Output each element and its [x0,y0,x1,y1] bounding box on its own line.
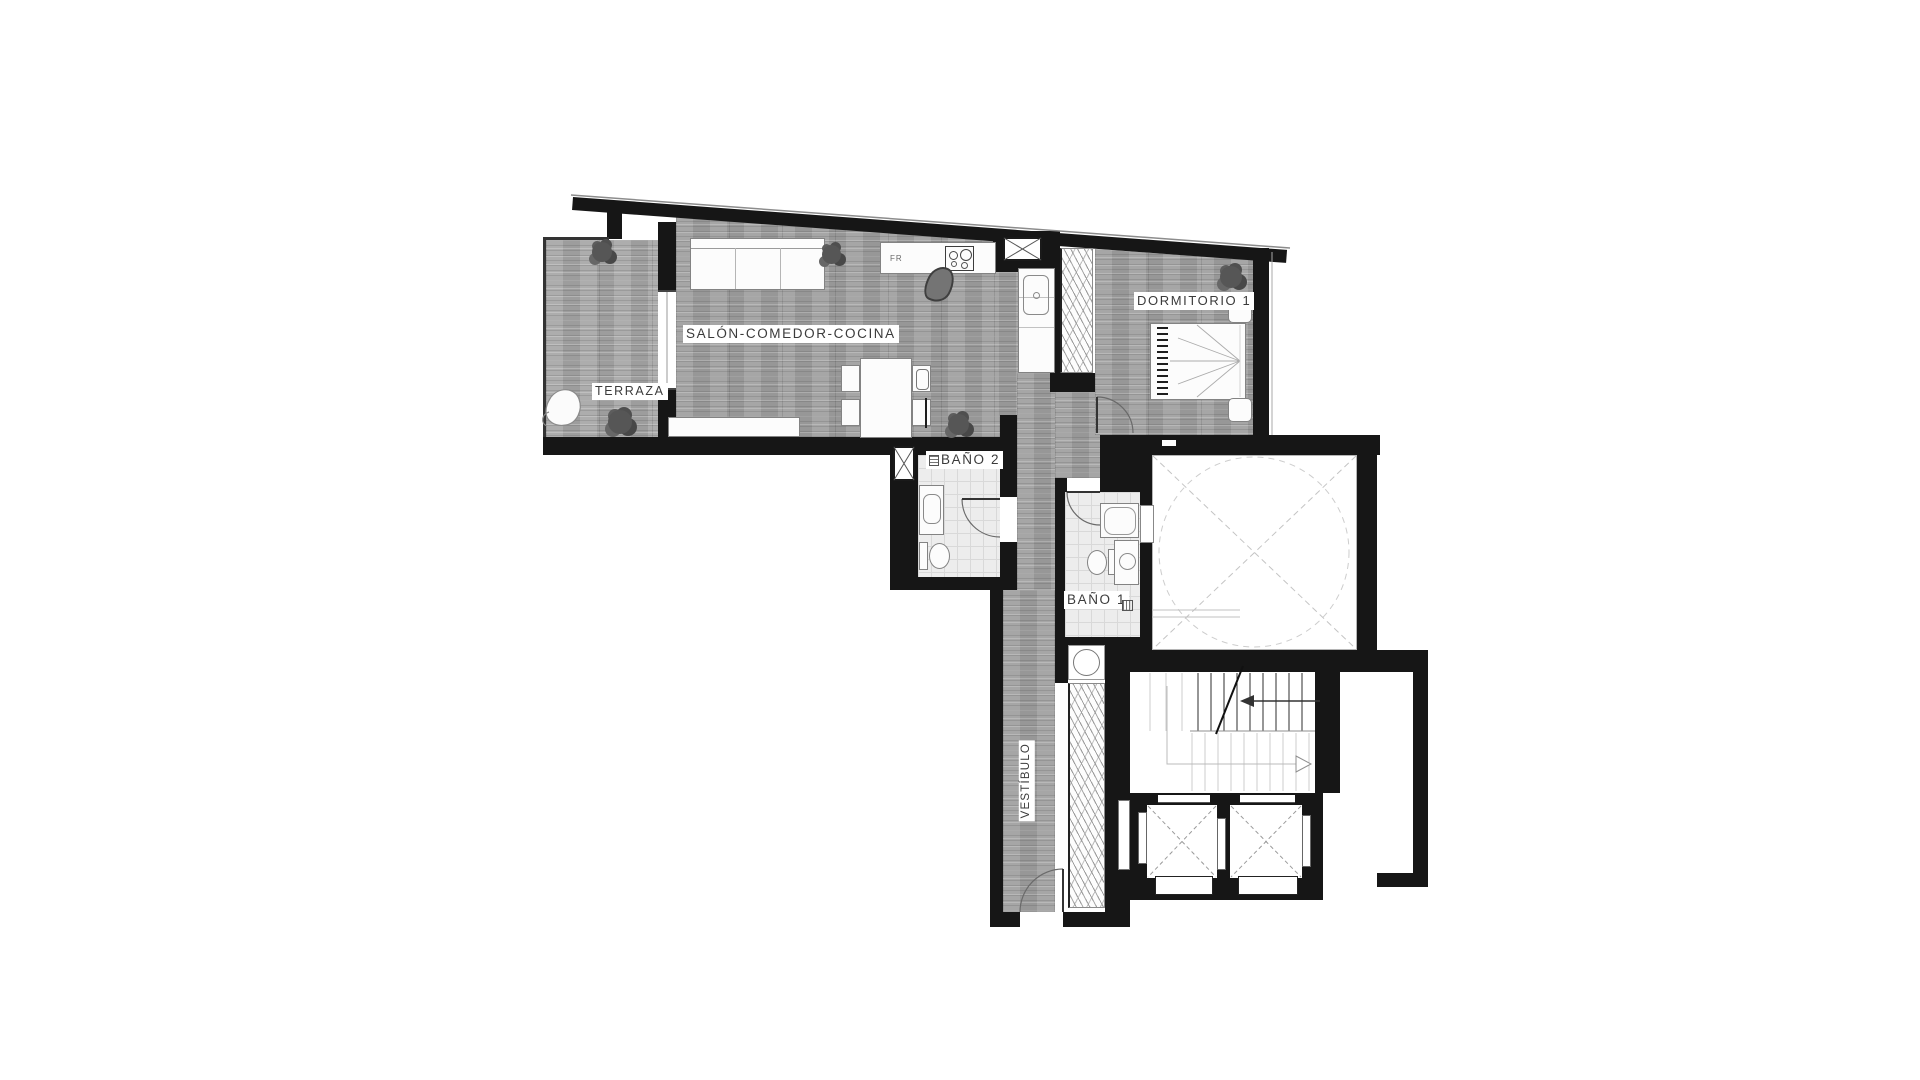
elevator-guide-1b [1217,818,1226,870]
wall-hall-divider [1105,637,1118,927]
label-bano1-text: BAÑO 1 [1067,592,1126,607]
burner [951,261,957,267]
wall-dormitorio-right [1253,248,1269,435]
patio-floor [1152,455,1357,650]
bano2-basin [923,494,941,524]
bano2-toilet-tank [919,542,928,570]
towel-radiator-icon [1122,600,1133,611]
bano2-sink-counter [919,485,944,535]
terraza-window [658,290,676,390]
plant [1220,266,1242,288]
bed-runner [1157,327,1168,396]
wall-outer-step [1348,650,1428,672]
sofa-divider [735,248,736,289]
wall-slit-mark [1162,440,1176,446]
kitchen-vent-duct [1003,237,1042,261]
label-vestibulo-text: VESTÍBULO [1020,743,1032,818]
elevator-shaft-1 [1147,805,1217,878]
fridge-mark: FR [890,254,903,263]
wall-stairs-right [1315,672,1340,793]
bano1-bathtub [1100,503,1139,538]
bedroom-entry-floor [1055,392,1102,478]
dining-chair [841,365,860,392]
elevator-guide-1a [1138,812,1147,864]
stairs-guide-line [1167,686,1296,764]
chair-mark [925,398,927,428]
wall-outer-right [1413,672,1428,887]
label-terraza-text: TERRAZA [595,384,665,398]
counter-shelf-line [1019,327,1054,328]
burner [949,251,958,260]
bano1-basin [1119,553,1136,570]
nightstand [1228,398,1252,422]
sofa-back-line [691,248,824,249]
elevator-sill-1 [1155,876,1213,895]
towel-radiator-icon [929,455,939,466]
elevator-door-slit-2 [1240,795,1295,803]
elevator-sill-2 [1238,876,1298,895]
wall-bano1-right [1140,455,1152,650]
label-salon: SALÓN-COMEDOR-COCINA [683,325,899,343]
label-bano1: BAÑO 1 [1064,591,1129,609]
bano2-vent-duct [893,446,915,481]
wall-vestibulo-left [990,590,1003,927]
wall-bano2-right-a [1000,415,1017,445]
sink-drain [1033,292,1040,299]
stairs-arrow-head [1240,695,1254,707]
wall-topleft-stub [607,203,622,239]
wall-wardrobe-bottom [1050,373,1095,392]
corridor-upper-floor [1017,373,1055,590]
highchair-inset [916,369,929,390]
stove [945,246,974,271]
wall-patio-right [1357,437,1377,650]
plant [592,242,612,262]
burner [961,262,968,269]
dining-chair [912,399,931,426]
label-vestibulo: VESTÍBULO [1019,740,1035,821]
dining-chair-highchair [912,365,931,392]
patio-wall-niche [1140,505,1154,543]
wall-vestibulo-bottom-a [990,912,1020,927]
label-salon-text: SALÓN-COMEDOR-COCINA [686,326,896,341]
room-terraza-floor [546,240,658,437]
wall-niche-left [1055,640,1068,683]
elevator-door-slit-1 [1158,795,1210,803]
plant [948,414,969,435]
label-dormitorio1-text: DORMITORIO 1 [1137,293,1251,308]
wall-bano2-bottom [890,577,1017,590]
wall-terraza-left [543,237,546,444]
floor-plan: FR [0,0,1920,1080]
bathtub-inner [1104,507,1136,535]
wall-bottomright-stub [1377,873,1428,887]
vestibulo-closet [1068,683,1105,908]
dormitorio-wardrobe [1060,248,1093,373]
stairs-cut-line [1216,666,1243,734]
label-dormitorio1: DORMITORIO 1 [1134,292,1254,310]
dining-table [860,358,912,438]
tv-sideboard [668,417,800,437]
wall-bano1-left [1055,490,1065,650]
bano2-toilet-bowl [929,543,950,569]
sofa [690,238,825,290]
bano1-toilet-bowl [1087,550,1107,575]
wall-stairs-top [1107,650,1348,672]
burner [960,249,972,261]
sofa-divider [780,248,781,289]
plant [608,410,632,434]
dining-chair [841,399,860,426]
kitchen-sink [1023,275,1049,315]
plant [822,245,841,264]
elevator-guide-2b [1302,815,1311,867]
wall-terraza-top [543,237,609,240]
label-bano2-text: BAÑO 2 [941,452,1000,468]
kitchen-counter-right [1018,268,1055,373]
stairs [1150,666,1320,791]
bano1-sink-counter [1114,540,1139,585]
hall-door [1118,800,1130,870]
label-terraza: TERRAZA [592,383,668,400]
wall-terraza-salon-upper [658,222,676,290]
label-bano2: BAÑO 2 [926,451,1003,469]
elevator-shaft-2 [1230,805,1302,878]
stairs-guide-arrow [1296,756,1311,772]
washing-machine [1073,649,1100,676]
